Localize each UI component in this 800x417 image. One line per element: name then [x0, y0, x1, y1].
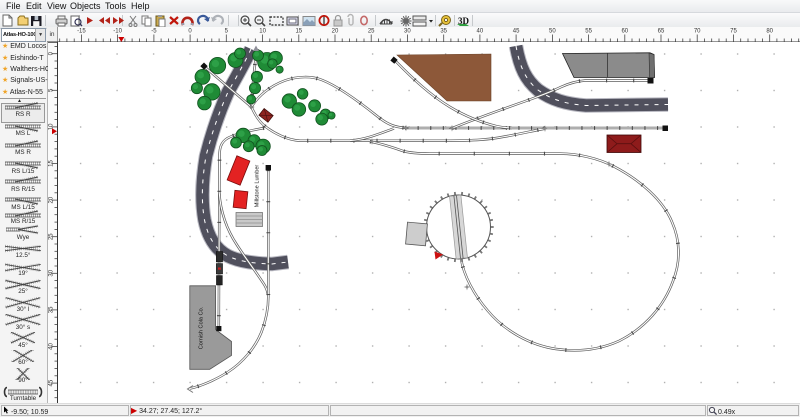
svg-text:-10: -10 [113, 29, 122, 35]
svg-text:10: 10 [49, 123, 55, 130]
svg-text:40: 40 [49, 343, 55, 350]
svg-text:10: 10 [259, 29, 266, 35]
svg-text:50: 50 [549, 29, 556, 35]
svg-text:30: 30 [404, 29, 411, 35]
svg-text:55: 55 [585, 29, 592, 35]
svg-text:15: 15 [295, 29, 302, 35]
svg-text:30: 30 [49, 269, 55, 276]
svg-text:60: 60 [621, 29, 628, 35]
svg-text:65: 65 [658, 29, 665, 35]
svg-text:75: 75 [730, 29, 737, 35]
svg-text:15: 15 [49, 160, 55, 167]
svg-text:45: 45 [513, 29, 520, 35]
svg-text:25: 25 [368, 29, 375, 35]
svg-text:-15: -15 [77, 29, 86, 35]
svg-text:70: 70 [694, 29, 701, 35]
svg-text:80: 80 [766, 29, 773, 35]
svg-text:Cornish Cola Co.: Cornish Cola Co. [199, 306, 205, 349]
svg-text:35: 35 [49, 306, 55, 313]
svg-text:Millstone Lumber: Millstone Lumber [255, 165, 261, 208]
svg-text:20: 20 [332, 29, 339, 35]
svg-text:45: 45 [49, 379, 55, 386]
svg-text:35: 35 [440, 29, 447, 35]
svg-text:40: 40 [477, 29, 484, 35]
svg-text:-5: -5 [151, 29, 157, 35]
svg-text:20: 20 [49, 196, 55, 203]
svg-text:25: 25 [49, 233, 55, 240]
